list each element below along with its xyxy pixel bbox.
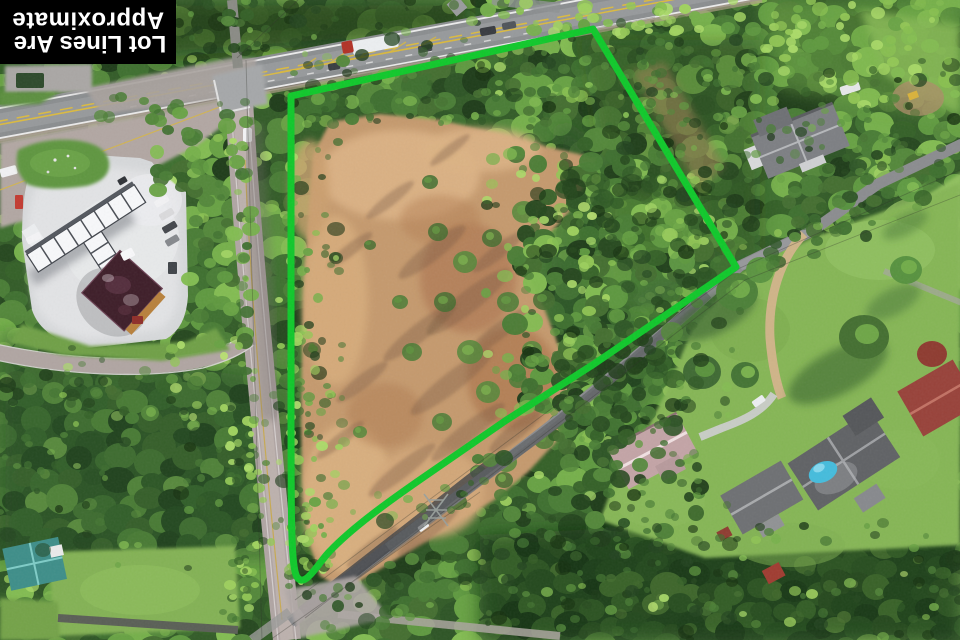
svg-text:Approximate: Approximate — [12, 7, 164, 34]
